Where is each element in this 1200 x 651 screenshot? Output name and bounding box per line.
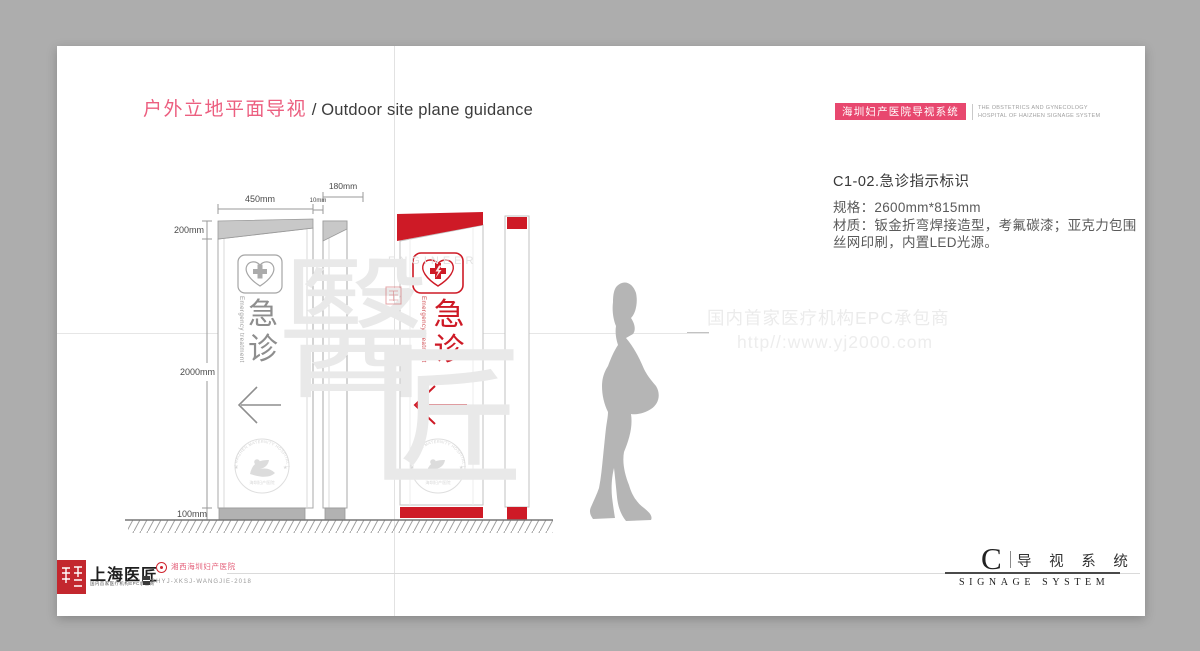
badge-subtitle-line1: THE OBSTETRICS AND GYNECOLOGY xyxy=(978,105,1100,113)
spec-block: C1-02.急诊指示标识 规格：2600mm*815mm 材质：钣金折弯焊接造型… xyxy=(833,170,1151,252)
page-title-en: Outdoor site plane guidance xyxy=(321,101,533,120)
spec-material-line1: 材质：钣金折弯焊接造型，考氟碳漆；亚克力包围 xyxy=(833,217,1151,235)
red-base xyxy=(400,507,483,518)
title-separator: / xyxy=(307,100,321,120)
badge-subtitle: THE OBSTETRICS AND GYNECOLOGY HOSPITAL O… xyxy=(978,103,1100,120)
section-divider xyxy=(1010,551,1011,568)
sign-char-2-gray: 诊 xyxy=(248,333,278,366)
section-title-zh: 导 视 系 统 xyxy=(1017,550,1135,571)
seal-bottom-text: 海圳妇产医院 xyxy=(249,479,275,486)
dim-label-100mm: 100mm xyxy=(177,509,207,519)
page-title-zh: 户外立地平面导视 xyxy=(143,94,307,121)
dimension-side-180: 180mm xyxy=(323,181,363,202)
person-silhouette xyxy=(590,282,659,521)
sign-char-1-gray: 急 xyxy=(248,298,278,331)
dimension-heights: 200mm 2000mm 100mm xyxy=(174,221,215,520)
site-watermark-line1: 国内首家医疗机构EPC承包商 xyxy=(707,306,949,330)
spec-material-line2: 丝网印刷，内置LED光源。 xyxy=(833,234,1151,252)
ground-hatch xyxy=(125,520,553,533)
maker-seal-logo xyxy=(57,560,86,594)
document-page: 户外立地平面导视 / Outdoor site plane guidance 海… xyxy=(57,46,1145,616)
dim-label-200mm: 200mm xyxy=(174,225,204,235)
spec-title: C1-02.急诊指示标识 xyxy=(833,170,1151,191)
emergency-heart-icon-gray xyxy=(238,255,282,293)
badge-subtitle-line2: HOSPITAL OF HAIZHEN SIGNAGE SYSTEM xyxy=(978,113,1100,121)
section-title-en: SIGNAGE SYSTEM xyxy=(959,577,1109,588)
partner-hospital-logo-icon xyxy=(156,562,167,573)
page-title: 户外立地平面导视 / Outdoor site plane guidance xyxy=(143,94,533,121)
site-watermark-url: http//:www.yj2000.com xyxy=(737,330,949,354)
sign-subtitle-gray: Emergency treatment xyxy=(238,296,245,363)
dim-label-450mm: 450mm xyxy=(245,194,275,204)
watermark-char-2: 匠 xyxy=(370,332,525,505)
technical-drawing: 450mm 10mm 180mm 200mm 2000mm 100mm xyxy=(120,167,680,587)
seal-star-left: ★ xyxy=(234,465,239,471)
system-badge: 海圳妇产医院导视系统 THE OBSTETRICS AND GYNECOLOGY… xyxy=(835,103,1100,120)
project-code: SHYJ-XKSJ-WANGJIE-2018 xyxy=(151,579,252,585)
seal-star-right: ★ xyxy=(283,465,288,471)
section-letter: C xyxy=(981,541,1002,577)
footer-rule-dark xyxy=(945,572,1120,574)
guide-line-dash xyxy=(687,332,709,333)
badge-divider xyxy=(972,104,973,120)
badge-label: 海圳妇产医院导视系统 xyxy=(835,103,966,120)
spec-size: 规格：2600mm*815mm xyxy=(833,199,1151,217)
brand-watermark: ENGINEER 醫 匠 xyxy=(278,245,525,505)
dim-label-2000mm: 2000mm xyxy=(180,367,215,377)
dimension-width-450: 450mm xyxy=(218,194,313,214)
dimension-gap-10: 10mm xyxy=(310,198,327,214)
partner-hospital-name: 湘西海圳妇产医院 xyxy=(171,561,236,572)
design-proof-canvas: { "window": { "backdrop_color": "#adadad… xyxy=(0,0,1200,651)
dim-label-10mm: 10mm xyxy=(310,198,327,204)
maker-seal-glyphs xyxy=(57,560,86,594)
mini-stamp-icon xyxy=(143,576,150,585)
dim-label-180mm: 180mm xyxy=(329,181,357,191)
sign-char-1-red: 急 xyxy=(434,297,465,332)
site-watermark: 国内首家医疗机构EPC承包商 http//:www.yj2000.com xyxy=(707,306,949,354)
